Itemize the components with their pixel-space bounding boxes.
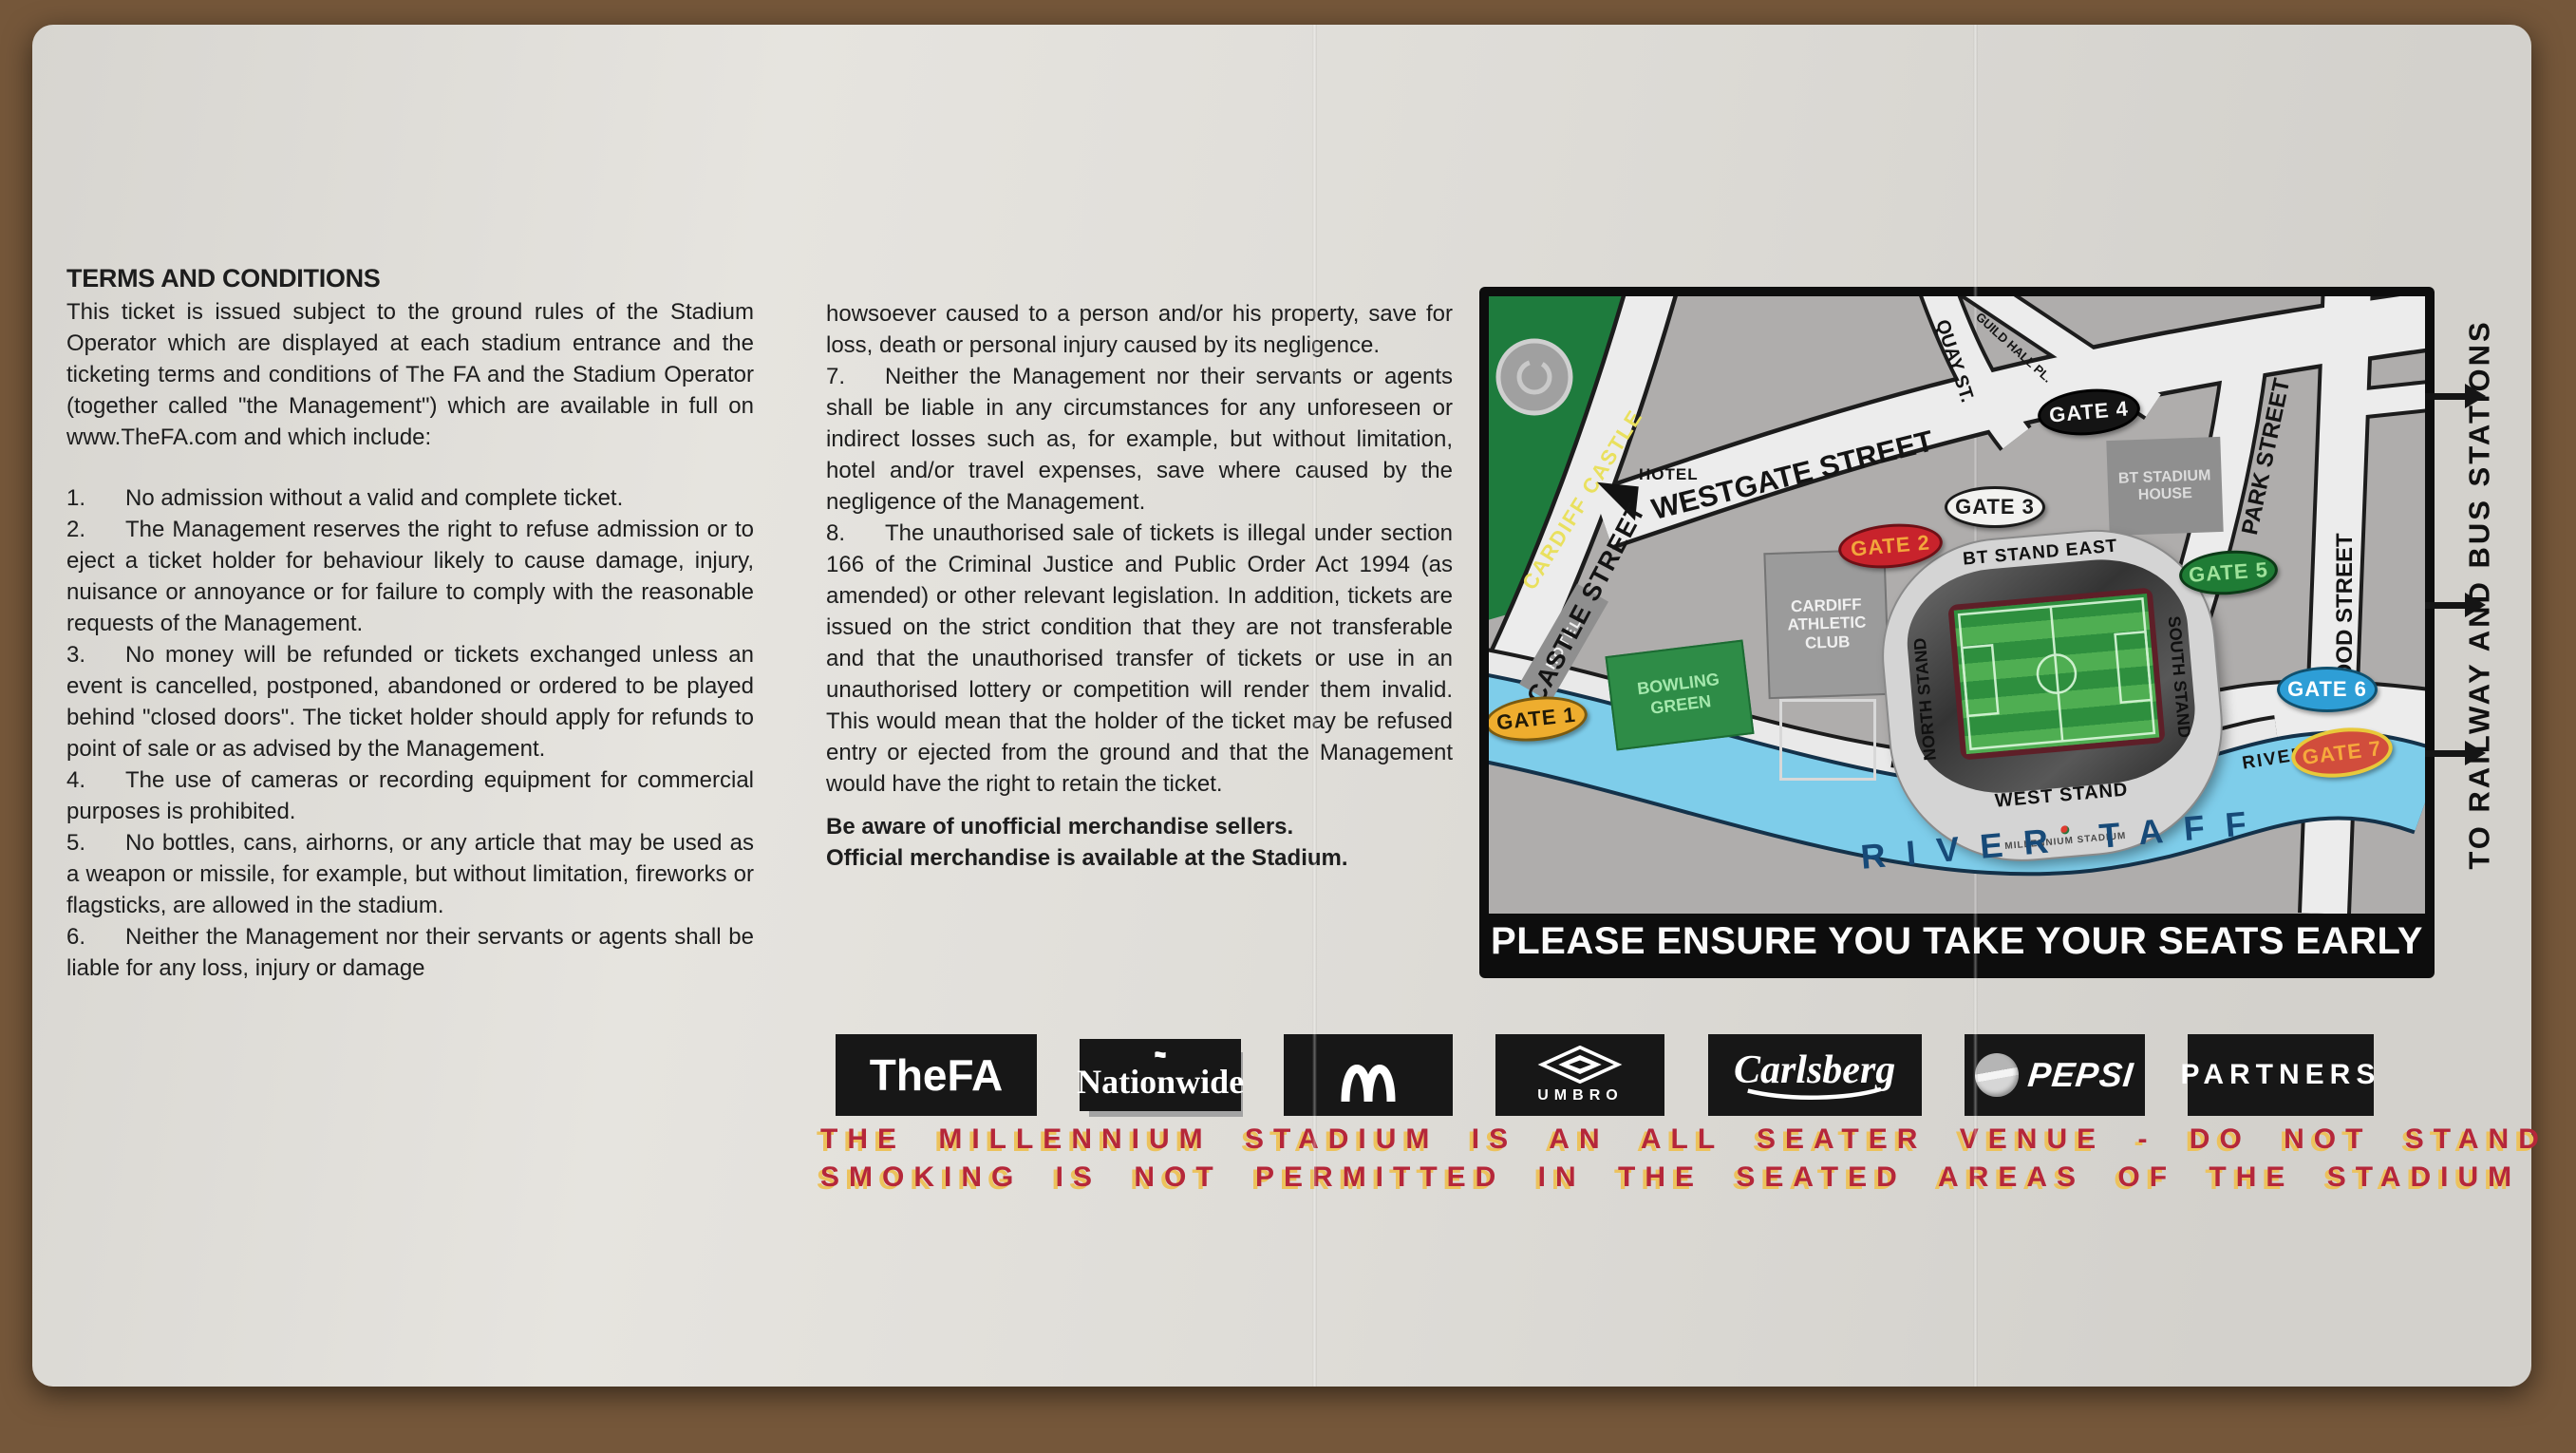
station-direction-arrow-icon — [2425, 741, 2486, 765]
term-item: 3.No money will be refunded or tickets e… — [66, 639, 754, 764]
stadium-pitch — [1954, 594, 2159, 754]
pepsi-globe-icon — [1975, 1053, 2019, 1097]
station-direction-arrow-icon — [2425, 384, 2486, 408]
bowling-green: BOWLING GREEN — [1605, 639, 1754, 750]
mcdonalds-logo — [1284, 1034, 1453, 1116]
terms-heading: TERMS AND CONDITIONS — [66, 264, 754, 293]
ticket-back: TERMS AND CONDITIONS This ticket is issu… — [32, 25, 2531, 1387]
athletic-club-annex — [1779, 699, 1876, 781]
partners-logo: PARTNERS — [2188, 1034, 2374, 1116]
all-seater-warning: THE MILLENNIUM STADIUM IS AN ALL SEATER … — [820, 1121, 2402, 1159]
term-item: 6.Neither the Management nor their serva… — [66, 921, 754, 984]
terms-column-1: TERMS AND CONDITIONS This ticket is issu… — [66, 264, 754, 984]
bt-stadium-house-building: BT STADIUM HOUSE — [2106, 437, 2223, 536]
no-smoking-warning: SMOKING IS NOT PERMITTED IN THE SEATED A… — [820, 1159, 2402, 1197]
seats-early-notice: PLEASE ENSURE YOU TAKE YOUR SEATS EARLY — [1489, 914, 2425, 969]
term-item: 7.Neither the Management nor their serva… — [826, 361, 1453, 518]
carlsberg-logo: Carlsberg — [1708, 1034, 1922, 1116]
fold-crease — [1312, 25, 1317, 1387]
merchandise-info: Official merchandise is available at the… — [826, 842, 1453, 874]
term-item: 5.No bottles, cans, airhorns, or any art… — [66, 827, 754, 921]
stadium-pitch-surround — [1947, 587, 2165, 760]
term-item: 8.The unauthorised sale of tickets is il… — [826, 518, 1453, 800]
nationwide-logo: Nationwide — [1080, 1039, 1241, 1111]
station-direction-arrow-icon — [2425, 593, 2486, 617]
terms-column-2: howsoever caused to a person and/or his … — [826, 298, 1453, 874]
term-item: 4.The use of cameras or recording equipm… — [66, 764, 754, 827]
terms-intro: This ticket is issued subject to the gro… — [66, 296, 754, 453]
term-item: 2.The Management reserves the right to r… — [66, 514, 754, 639]
pitch-markings — [1954, 594, 2159, 754]
cardiff-athletic-club-building: CARDIFF ATHLETIC CLUB — [1763, 549, 1890, 699]
term-item: 1.No admission without a valid and compl… — [66, 482, 754, 514]
stadium-map: CARDIFF ATHLETIC CLUB BT STADIUM HOUSE B… — [1479, 287, 2435, 978]
umbro-logo: UMBRO — [1495, 1034, 1664, 1116]
umbro-diamond-icon — [1536, 1046, 1624, 1084]
gate-3-badge: GATE 3 — [1945, 486, 2045, 528]
the-fa-logo: TheFA — [836, 1034, 1037, 1116]
term-item-6-continuation: howsoever caused to a person and/or his … — [826, 298, 1453, 361]
terms-items: 1.No admission without a valid and compl… — [66, 482, 754, 984]
sponsor-logo-bar: TheFA Nationwide UMBRO Carlsberg — [836, 1033, 2374, 1117]
pepsi-logo: PEPSI — [1965, 1034, 2145, 1116]
merchandise-warning: Be aware of unofficial merchandise selle… — [826, 811, 1453, 842]
carlsberg-swoosh-icon — [1734, 1087, 1895, 1103]
map-canvas: CARDIFF ATHLETIC CLUB BT STADIUM HOUSE B… — [1489, 296, 2425, 914]
gate-6-badge: GATE 6 — [2277, 667, 2378, 712]
golden-arches-icon — [1334, 1047, 1402, 1104]
hotel-label-westgate: HOTEL — [1639, 465, 1699, 484]
stadium-warning-text: THE MILLENNIUM STADIUM IS AN ALL SEATER … — [820, 1121, 2402, 1197]
castle-keep-icon — [1498, 341, 1570, 413]
